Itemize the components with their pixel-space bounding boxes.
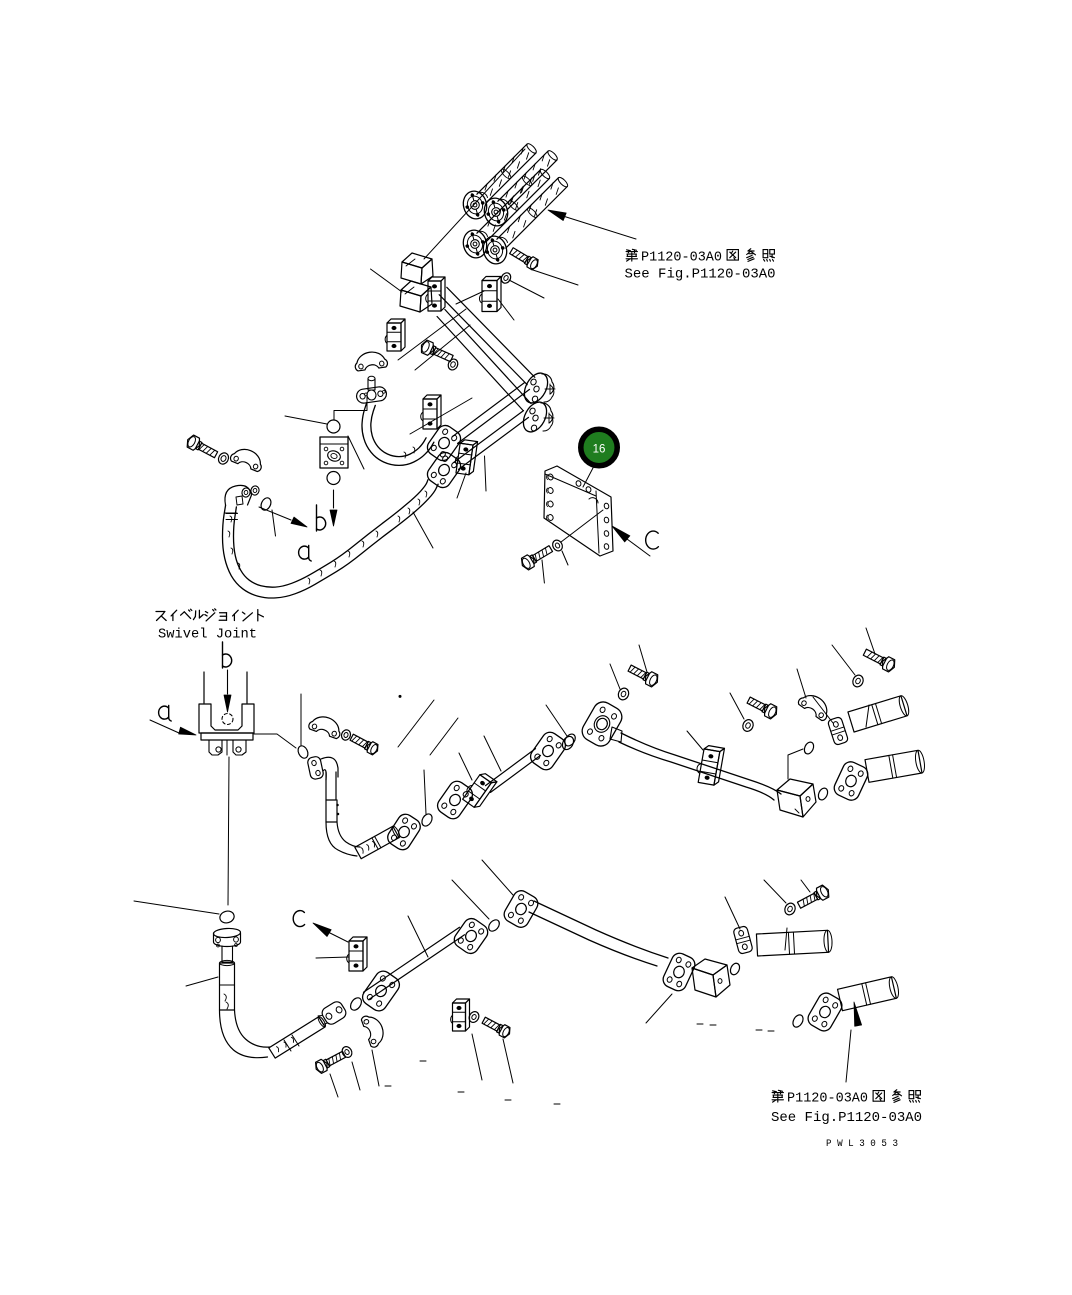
svg-text:P W L 3 0 5 3: P W L 3 0 5 3: [826, 1138, 898, 1150]
svg-text:See Fig.P1120-03A0: See Fig.P1120-03A0: [625, 267, 776, 283]
svg-text:P1120-03A0: P1120-03A0: [787, 1091, 868, 1107]
svg-text:See Fig.P1120-03A0: See Fig.P1120-03A0: [771, 1110, 922, 1126]
svg-text:P1120-03A0: P1120-03A0: [641, 250, 722, 266]
svg-text:Swivel Joint: Swivel Joint: [158, 628, 257, 643]
svg-text:16: 16: [593, 444, 606, 456]
